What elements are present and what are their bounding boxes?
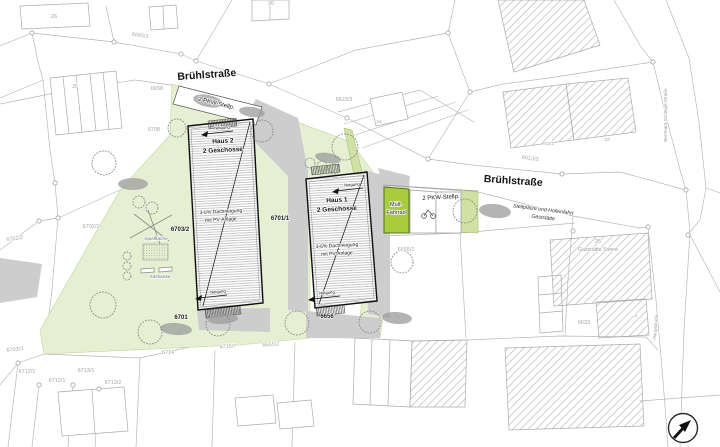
- parcel-6713-2: 6713/2: [105, 380, 122, 386]
- benches-label: Sitzbänke: [149, 274, 170, 280]
- note-stellplaetze-line2: Gaststätte: [531, 214, 555, 223]
- parcel-6655-2: 6655/2: [262, 341, 279, 348]
- sandbox: [143, 244, 168, 260]
- parcel-6701: 6701: [174, 315, 188, 321]
- building-26-top-label: 26: [268, 1, 274, 7]
- gaststaette-annex: [596, 299, 649, 338]
- parcel-6655-1: 6655/1: [398, 247, 415, 253]
- parcel-6715-7: 6715/7: [219, 344, 236, 351]
- parcel-6714: 6714: [162, 350, 174, 356]
- parcel-6613-3: 6613/3: [521, 155, 538, 163]
- bench-2: [159, 267, 172, 272]
- parcel-6712-1a: 6712/1: [19, 369, 36, 375]
- gaststaette-sonne-building: [550, 233, 652, 306]
- site-plan-canvas: 26266665/1Brühlstraße66582 PKW-Stellp.67…: [0, 0, 720, 447]
- muell-box-line1: Müll-: [390, 202, 402, 208]
- building-23-1-label: 23/1: [544, 141, 554, 147]
- parcel-6702-2: 6702/2: [6, 235, 23, 243]
- building-23-label: 23: [604, 137, 610, 143]
- street-bruehlstrasse-east: Brühlstraße: [483, 173, 543, 189]
- parcel-6703-2: 6703/2: [171, 227, 190, 233]
- site-plan-svg: 26266665/1Brühlstraße66582 PKW-Stellp.67…: [0, 0, 720, 447]
- north-arrow-icon: [669, 414, 698, 443]
- parcel-25-west: 25: [72, 84, 78, 90]
- parcel-6713-1: 6713/1: [78, 368, 95, 374]
- parcel-6702-1: 6702/1: [83, 224, 100, 230]
- parcel-6708: 6708: [148, 127, 160, 133]
- hedge-strip-3: [461, 190, 478, 233]
- parcel-6656: 6656: [320, 314, 334, 320]
- parcel-6623-3: 6623/3: [336, 97, 353, 103]
- street-bernhard-schlegel: Bernhard-Schlegel-Straße: [663, 88, 668, 142]
- parcel-6633: 6633: [578, 320, 590, 326]
- haus-1-building: [306, 164, 377, 316]
- bench-1: [141, 268, 154, 273]
- parcel-6703-3: 6703/3: [6, 346, 23, 353]
- building-24-label: 24: [376, 119, 382, 125]
- street-bruehlstrasse-west: Brühlstraße: [177, 67, 237, 83]
- haus2-name: Haus 2: [212, 137, 234, 145]
- gaststaette-number: 25: [595, 239, 601, 245]
- gaststaette-name: Gaststätte Sonne: [578, 247, 618, 253]
- parcel-6701-1: 6701/1: [271, 216, 290, 222]
- haus1-name: Haus 1: [326, 196, 348, 204]
- parcel-6658: 6658: [151, 86, 163, 92]
- parcel-6712-1b: 6712/1: [49, 378, 66, 384]
- building-26-left-label: 26: [51, 14, 57, 20]
- playground-label: Spielfläche: [144, 236, 168, 242]
- parcel-6665-1: 6665/1: [131, 32, 148, 40]
- muell-box-line2: Fahrrad: [386, 210, 405, 216]
